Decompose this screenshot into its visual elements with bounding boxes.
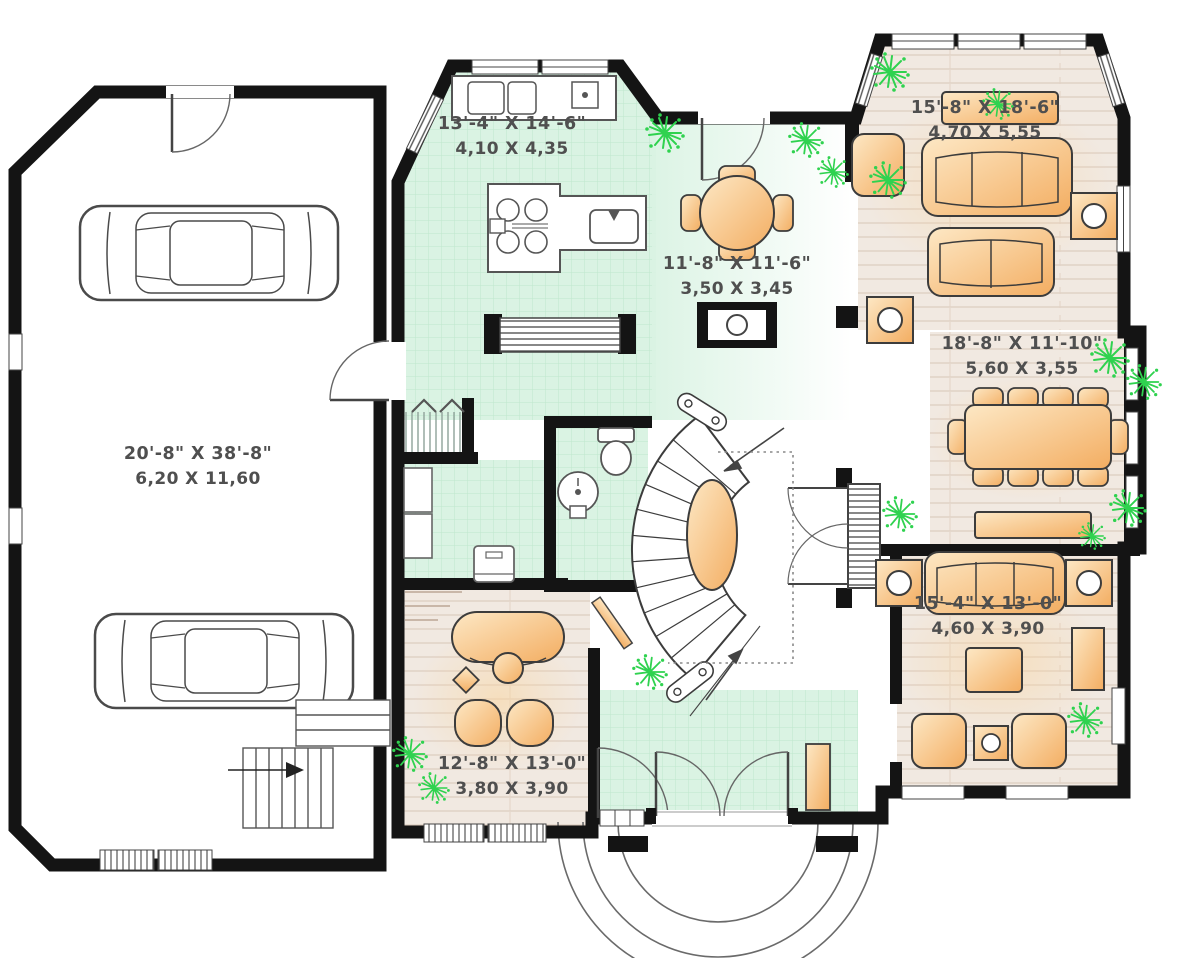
car-icon <box>80 206 338 300</box>
floor-plan-drawing <box>0 0 1200 958</box>
window-office-2 <box>488 824 546 842</box>
kitchen-sink-counter <box>452 76 616 120</box>
kitchen-bar-counter <box>500 318 620 352</box>
garage <box>80 206 390 828</box>
fireplace <box>697 302 777 348</box>
floor-plan: 13'-4" X 14'-6" 4,10 X 4,35 11'-8" X 11'… <box>0 0 1200 958</box>
window-family-bottom-2 <box>1006 786 1068 799</box>
hall-mint-fade <box>652 118 852 420</box>
sofa <box>925 552 1065 614</box>
plant-icon <box>882 496 918 532</box>
window-family-bottom-1 <box>902 786 964 799</box>
armchair <box>1012 714 1066 768</box>
dining-table <box>965 405 1111 469</box>
window-garage-bottom-1 <box>100 850 154 870</box>
door-garage-laundry <box>330 341 406 400</box>
window-office-1 <box>424 824 484 842</box>
toilet-icon <box>598 428 634 475</box>
lamp-table <box>867 297 913 343</box>
coffee-table <box>966 648 1022 692</box>
plant-icon <box>632 654 668 690</box>
armchair <box>852 134 904 196</box>
garage-stairs <box>228 700 390 828</box>
breakfast-table <box>700 176 774 250</box>
door-garage-top <box>166 86 234 152</box>
window-family-right <box>1112 688 1125 744</box>
tub-chair <box>455 700 501 746</box>
lamp-table <box>876 560 922 606</box>
media-cabinet <box>1072 628 1104 690</box>
door-office <box>592 597 632 649</box>
lamp-table <box>1071 193 1117 239</box>
window-foyer-sidelight <box>600 810 644 826</box>
armchair <box>912 714 966 768</box>
foyer-column <box>687 480 737 590</box>
door-hall-louvered-unit <box>788 484 880 588</box>
foyer-runner-rug <box>806 744 830 810</box>
loveseat <box>928 228 1054 296</box>
sofa <box>922 138 1072 216</box>
lamp-table <box>1066 560 1112 606</box>
washer-icon <box>474 546 514 582</box>
tub-chair <box>507 700 553 746</box>
side-table <box>974 726 1008 760</box>
desk-chair <box>493 653 523 683</box>
porch-step-right <box>816 836 858 852</box>
window-garage-left-1 <box>9 334 22 370</box>
window-garage-left-2 <box>9 508 22 544</box>
window-garage-bottom-2 <box>158 850 212 870</box>
porch-step-left <box>608 836 648 852</box>
car-icon <box>95 614 353 708</box>
buffet <box>975 512 1091 538</box>
